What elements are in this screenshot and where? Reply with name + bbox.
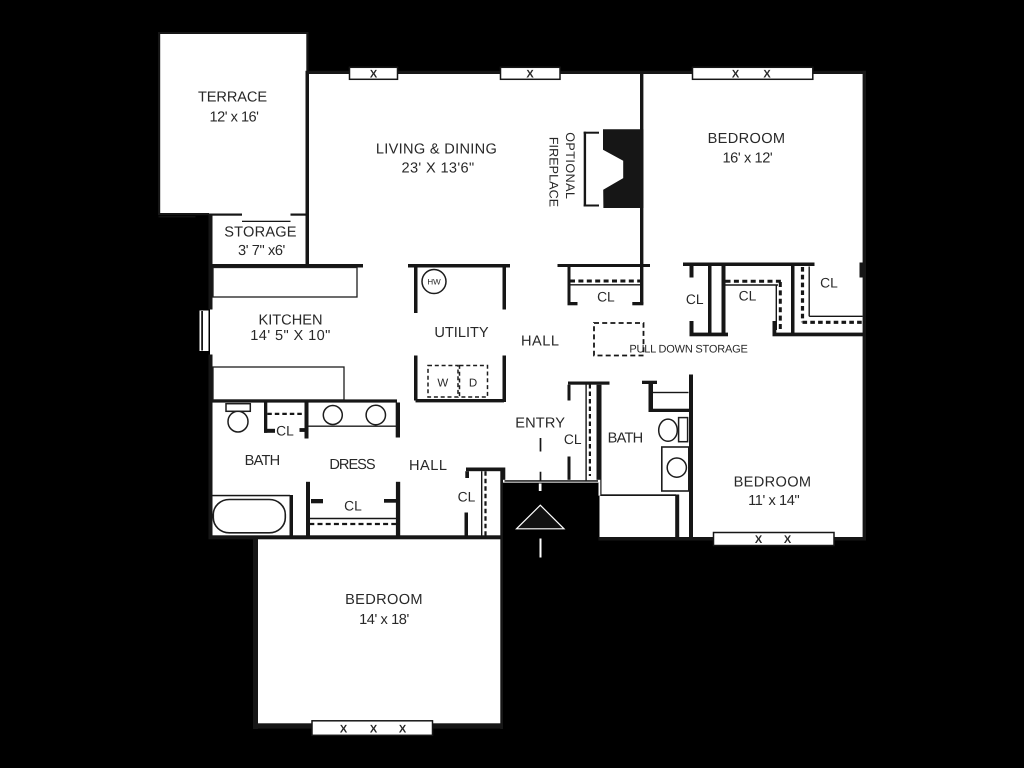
svg-text:BEDROOM: BEDROOM (708, 131, 786, 147)
svg-text:X: X (784, 534, 792, 546)
svg-text:16' x 12': 16' x 12' (722, 151, 772, 167)
svg-text:KITCHEN: KITCHEN (258, 312, 322, 328)
svg-text:BATH: BATH (608, 431, 643, 447)
svg-text:HALL: HALL (521, 333, 560, 349)
svg-text:W: W (437, 377, 448, 389)
svg-text:HW: HW (427, 278, 441, 287)
svg-text:BATH: BATH (245, 453, 280, 469)
svg-text:D: D (469, 377, 477, 389)
svg-text:CL: CL (739, 288, 757, 303)
svg-text:CL: CL (597, 289, 615, 304)
svg-text:X: X (370, 68, 378, 80)
svg-text:23' X 13'6": 23' X 13'6" (401, 160, 474, 176)
svg-text:X: X (370, 723, 378, 735)
svg-text:12' x 16': 12' x 16' (210, 110, 260, 126)
svg-text:OPTIONAL: OPTIONAL (563, 132, 577, 199)
svg-text:TERRACE: TERRACE (198, 90, 267, 106)
svg-text:14' 5" X 10": 14' 5" X 10" (250, 328, 330, 344)
svg-text:14' x 18': 14' x 18' (359, 612, 409, 628)
svg-text:DRESS: DRESS (329, 457, 376, 473)
svg-text:X: X (732, 68, 740, 80)
svg-text:CL: CL (458, 490, 476, 505)
svg-text:X: X (763, 68, 771, 80)
svg-text:X: X (340, 723, 348, 735)
svg-text:X: X (526, 68, 534, 80)
svg-text:CL: CL (564, 432, 582, 447)
svg-text:CL: CL (344, 499, 362, 514)
svg-text:ENTRY: ENTRY (515, 416, 565, 432)
svg-text:HALL: HALL (409, 458, 448, 474)
svg-text:FIREPLACE: FIREPLACE (547, 137, 561, 207)
svg-text:CL: CL (686, 292, 704, 307)
svg-text:3' 7" x6': 3' 7" x6' (238, 243, 286, 259)
svg-text:STORAGE: STORAGE (224, 225, 297, 241)
svg-text:UTILITY: UTILITY (434, 325, 489, 341)
svg-text:11' x 14": 11' x 14" (748, 493, 799, 509)
svg-text:X: X (399, 723, 407, 735)
svg-text:CL: CL (820, 275, 838, 290)
svg-text:LIVING & DINING: LIVING & DINING (376, 142, 497, 158)
svg-text:PULL DOWN STORAGE: PULL DOWN STORAGE (629, 343, 747, 355)
svg-text:BEDROOM: BEDROOM (734, 474, 812, 490)
svg-text:CL: CL (276, 424, 294, 439)
svg-text:BEDROOM: BEDROOM (345, 592, 423, 608)
svg-text:X: X (755, 534, 763, 546)
